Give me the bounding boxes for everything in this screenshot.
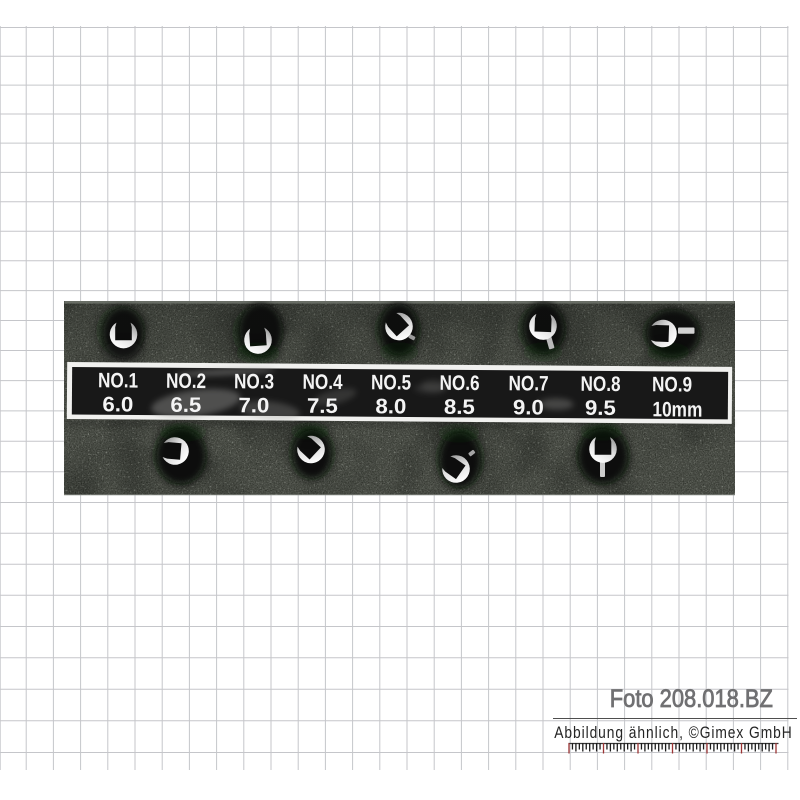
svg-text:NO.1: NO.1: [98, 369, 138, 392]
svg-text:NO.6: NO.6: [439, 372, 479, 395]
svg-text:NO.4: NO.4: [302, 371, 342, 394]
svg-text:NO.8: NO.8: [580, 373, 620, 396]
svg-text:6.5: 6.5: [170, 394, 201, 417]
svg-text:NO.7: NO.7: [508, 372, 548, 395]
svg-text:8.5: 8.5: [444, 396, 475, 419]
svg-text:NO.9: NO.9: [652, 373, 692, 396]
svg-text:6.0: 6.0: [102, 393, 133, 416]
svg-text:10mm: 10mm: [652, 398, 702, 421]
svg-text:9.5: 9.5: [585, 397, 616, 420]
svg-text:7.0: 7.0: [238, 394, 269, 417]
svg-text:8.0: 8.0: [375, 395, 406, 418]
svg-text:NO.3: NO.3: [234, 370, 274, 393]
svg-text:NO.5: NO.5: [371, 371, 411, 394]
svg-text:7.5: 7.5: [307, 395, 338, 418]
svg-text:NO.2: NO.2: [166, 370, 206, 393]
svg-text:9.0: 9.0: [513, 396, 544, 419]
